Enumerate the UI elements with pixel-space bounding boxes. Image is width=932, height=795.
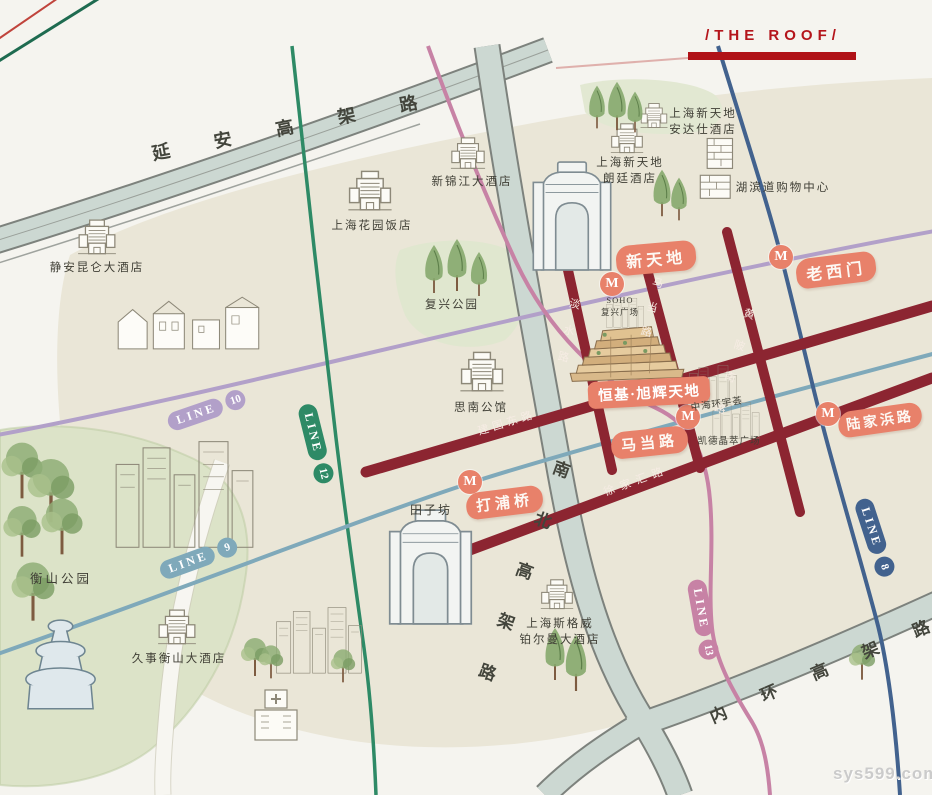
landmark-andaz-line1: 上海新天地 [669, 106, 737, 122]
landmark-jiushi-hengshan-hotel: 久事衡山大酒店 [132, 651, 227, 669]
page-title: /THE ROOF/ [688, 27, 858, 44]
corner-line-red [0, 0, 64, 42]
metro-icon-dapuqiao: M [458, 470, 482, 494]
landmark-sinan-mansions: 思南公馆 [454, 400, 508, 418]
landmark-soho-fuxing-plaza: SOHO 复兴广场 [601, 295, 639, 319]
landmark-pullman-line2: 铂尔曼大酒店 [520, 632, 601, 648]
title-underline-bar [688, 52, 856, 60]
metro-icon-laoximen: M [769, 245, 793, 269]
metro-icon-xintiandi: M [600, 272, 624, 296]
corner-line-green [0, 0, 106, 64]
landmark-tianzifang: 田子坊 [410, 501, 452, 520]
landmark-andaz-hotel: 上海新天地 安达仕酒店 [669, 106, 737, 138]
landmark-hengshan-park: 衡山公园 [30, 570, 92, 589]
landmark-pullman-line1: 上海斯格威 [520, 616, 601, 632]
landmark-hubindao-mall: 湖滨道购物中心 [736, 180, 831, 198]
watermark: sys599.com [833, 764, 932, 784]
landmark-soho-line1: SOHO [601, 295, 639, 307]
map-canvas: /THE ROOF/ 延安高架路 南北高架路 内环高架路 淡水路 马当路 黄陂南… [0, 0, 932, 795]
landmark-capitamall-jingcui: 凯德晶萃广场 [697, 435, 760, 450]
landmark-langham-line2: 朗廷酒店 [596, 171, 664, 187]
metro-icon-lujiabanglu: M [816, 402, 840, 426]
landmark-new-jinjiang-hotel: 新锦江大酒店 [432, 174, 513, 192]
landmark-pullman-hotel: 上海斯格威 铂尔曼大酒店 [520, 616, 601, 648]
landmark-jingan-kunlun-hotel: 静安昆仑大酒店 [50, 260, 145, 278]
line-13-number: 13 [697, 638, 720, 661]
landmark-langham-line1: 上海新天地 [596, 155, 664, 171]
landmark-garden-hotel: 上海花园饭店 [332, 218, 413, 236]
landmark-soho-line2: 复兴广场 [601, 307, 639, 319]
landmark-fuxing-park: 复兴公园 [425, 297, 479, 315]
landmark-andaz-line2: 安达仕酒店 [669, 122, 737, 138]
landmark-langham-hotel: 上海新天地 朗廷酒店 [596, 155, 664, 187]
